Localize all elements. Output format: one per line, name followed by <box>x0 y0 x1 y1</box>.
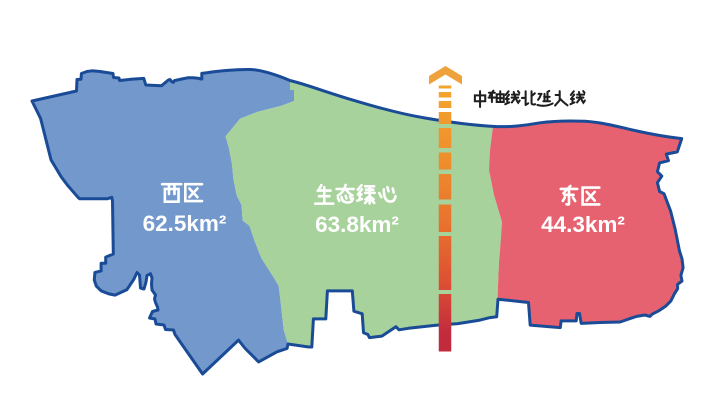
svg-text:62.5km²: 62.5km² <box>143 211 227 236</box>
svg-text:63.8km²: 63.8km² <box>315 212 399 237</box>
svg-text:44.3km²: 44.3km² <box>541 212 625 237</box>
